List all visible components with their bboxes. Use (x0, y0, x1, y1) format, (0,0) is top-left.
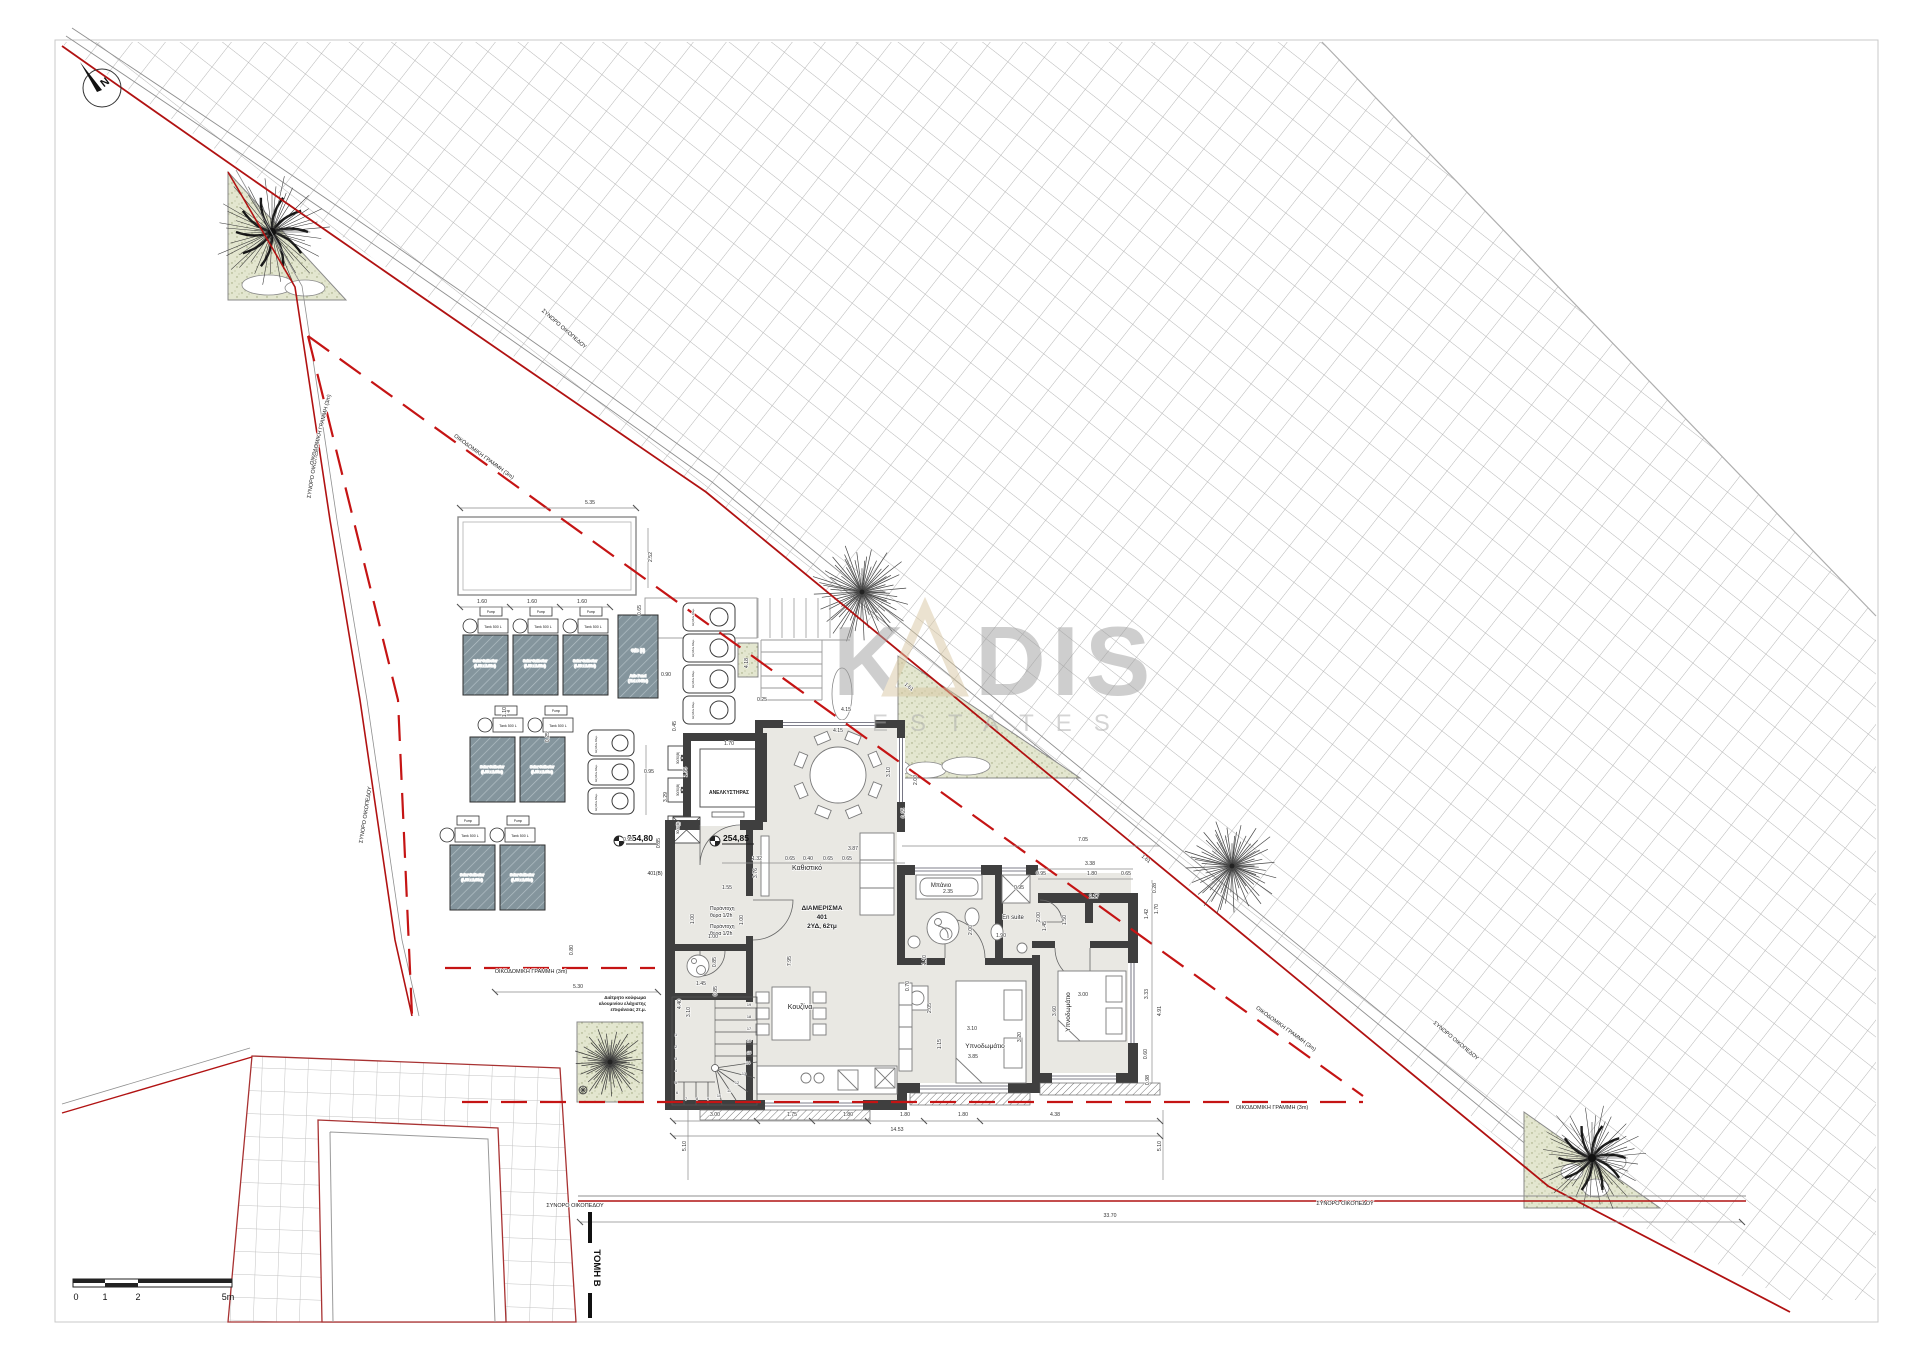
apartment-title: 401 (817, 914, 828, 921)
equipment-label: Tank 500 L (549, 724, 567, 728)
door-tag: 401(Β) (647, 871, 662, 877)
room-label: Κουζίνα (788, 1003, 813, 1011)
dimension-label: 3.29 (663, 792, 669, 802)
dimension-label: 0.95 (1036, 871, 1046, 877)
equipment-label: (1.00 x 2.00m) (574, 664, 596, 668)
dimension-label: 1.00 (739, 915, 745, 925)
equipment-label: (1.00 x 2.00m) (474, 664, 496, 668)
dimension-label: 1.70 (1154, 904, 1160, 914)
room-label: Υπνοδωμάτιο (965, 1042, 1005, 1050)
elevator-label: ΑΝΕΛΚΥΣΤΗΡΑΣ (709, 790, 749, 796)
shaft-label: 30/30(Β) (676, 784, 680, 796)
dimension-label: 0.65 (842, 856, 852, 862)
dimension-label: 4.15 (833, 728, 843, 734)
dimension-label: 5.35 (585, 500, 595, 506)
dimension-label: 1.00 (708, 934, 718, 940)
dimension-label: 1.75 (787, 1112, 797, 1118)
boundary-label: ΣΥΝΟΡΟ ΟΙΚΟΠΕΔΟΥ (546, 1203, 604, 1209)
dimension-label: 0.95 (644, 769, 654, 775)
ac-unit-label: Εξ.Μον.Κλιμ. (594, 764, 598, 782)
stair-number: 3 (675, 1057, 677, 1061)
section-label: ΤΟΜΗ Β (591, 1249, 602, 1286)
dimension-label: 1.10 (922, 955, 928, 965)
dimension-label: 0.65 (823, 856, 833, 862)
equipment-label: (1.00 x 2.00m) (524, 664, 546, 668)
ac-unit-label: Εξ.Μον.Κλιμ. (691, 639, 695, 657)
dimension-label: 1.80 (958, 1112, 968, 1118)
dimension-label: 5.30 (573, 984, 583, 990)
room-label: Καθιστικό (792, 864, 822, 872)
dimension-label: 1.15 (937, 1039, 943, 1049)
shaft-label: 30/30(Β) (676, 822, 680, 834)
stair-number: 13 (742, 1072, 746, 1076)
stair-number: 4 (675, 1069, 677, 1073)
scale-tick: 1 (102, 1292, 107, 1302)
equipment-label: Solar Collector (510, 873, 535, 877)
stair-number: 5 (675, 1081, 677, 1085)
kitchen-table (772, 987, 810, 1040)
fire-door-label: Πυράντοχη (710, 923, 735, 930)
dimension-label: 7.05 (1078, 837, 1088, 843)
dimension-label: 1.95 (683, 767, 689, 777)
equipment-label: (1.00 x 2.00m) (461, 878, 483, 882)
stair-number: 16 (747, 1039, 751, 1043)
equipment-label: Tank 500 L (484, 625, 502, 629)
equipment-label: Solar Collector (530, 765, 555, 769)
equipment-label: Pump (487, 610, 496, 614)
equipment-label: Solar Collector (573, 659, 598, 663)
room-label: En suite (1002, 915, 1024, 921)
stair-number: 18 (747, 1015, 751, 1019)
scale-tick: 2 (135, 1292, 140, 1302)
note: Διάτρητο κούφωμα (604, 995, 646, 1000)
dimension-label: 0.65 (637, 605, 643, 615)
stair-number: 1 (675, 1033, 677, 1037)
dimension-label: 1.45 (696, 981, 706, 987)
stair-number: 9 (707, 1097, 709, 1101)
dimension-label: 3.00 (1078, 992, 1088, 998)
fire-door-label: Πυράντοχη (710, 905, 735, 912)
equipment-label: (1.00 x 2.00m) (511, 878, 533, 882)
planter-symbol (579, 1086, 587, 1094)
stair-number: 19 (747, 1003, 751, 1007)
dimension-label: 0.40 (803, 856, 813, 862)
dimension-label: 3.38 (1085, 861, 1095, 867)
dimension-label: 1.45 (1042, 921, 1048, 931)
neighbour-building (228, 1056, 576, 1322)
fire-door-label: θύρα 1/2h (710, 912, 733, 919)
shaft-label: 30/30(Β) (676, 752, 680, 764)
dimension-label: 3.33 (1144, 989, 1150, 999)
dimension-label: 0.90 (661, 672, 671, 678)
dimension-label: 0.25 (545, 732, 551, 742)
dimension-label: 3.60 (1052, 1006, 1058, 1016)
dimension-label: 0.60 (1143, 1049, 1149, 1059)
stair-number: 14 (746, 1061, 750, 1065)
dimension-label: 0.65 (1121, 871, 1131, 877)
dimension-label: 1.10 (502, 707, 508, 717)
dimension-label: 0.95 (1014, 885, 1024, 891)
dimension-label: 1.60 (527, 599, 537, 605)
dimension-label: 4.91 (1157, 1006, 1163, 1016)
dimension-label: 1.70 (724, 741, 734, 747)
stair-number: 12 (735, 1081, 739, 1085)
dimension-label: 2.00 (968, 925, 974, 935)
apartment-title: 2ΥΔ, 62τμ (807, 923, 837, 930)
dimension-label: 1.60 (477, 599, 487, 605)
dimension-label: 0.25 (757, 697, 767, 703)
ac-unit-label: Εξ.Μον.Κλιμ. (691, 701, 695, 719)
equipment-label: Solar Collector (523, 659, 548, 663)
dimension-label: 0.45 (672, 721, 678, 731)
room-label: Μπάνιο (931, 882, 952, 889)
equipment-label: Pump (514, 819, 523, 823)
sofa (860, 833, 894, 915)
dimension-label: 5.10 (682, 1141, 688, 1151)
ac-unit-label: Εξ.Μον.Κλιμ. (691, 608, 695, 626)
dimension-label: 3.87 (848, 846, 858, 852)
boundary-label: ΣΥΝΟΡΟ ΟΙΚΟΠΕΔΟΥ (1316, 1201, 1374, 1207)
stair-number: 17 (747, 1027, 751, 1031)
stair-number: 7 (685, 1097, 687, 1101)
equipment-label: Solar Collector (480, 765, 505, 769)
watermark-estates: ESTATES (872, 710, 1132, 737)
dimension-label: 0.85 (712, 957, 718, 967)
dimension-label: 1.60 (577, 599, 587, 605)
dimension-label: 1.00 (690, 914, 696, 924)
watermark-k: K (833, 606, 904, 716)
dimension-label: 1.55 (722, 885, 732, 891)
dimension-label: 1.50 (1062, 915, 1068, 925)
equipment-label: Solar Collector (473, 659, 498, 663)
dimension-label: 4.40 (677, 999, 683, 1009)
dimension-label: 0.95 (623, 837, 633, 843)
dimension-label: 2.00 (1036, 912, 1042, 922)
stair-number: 6 (676, 1091, 678, 1095)
tv-unit (761, 836, 769, 896)
equipment-label: Pump (537, 610, 546, 614)
dimension-label: 3.85 (968, 1054, 978, 1060)
dimension-label: 4.15 (841, 707, 851, 713)
watermark: K DIS ESTATES (833, 606, 1156, 737)
dimension-label: 14.53 (891, 1127, 904, 1133)
scale-tick: 5m (222, 1292, 235, 1302)
equipment-label: Solar Collector (460, 873, 485, 877)
dimension-label: 0.98 (1145, 1075, 1151, 1085)
equipment-label: Pump (587, 610, 596, 614)
equipment-label: (714 x 347m) (628, 679, 648, 683)
equipment-label: Auto Panel (630, 674, 647, 678)
equipment-label: Tank 500 L (461, 834, 479, 838)
equipment-label: Pump (464, 819, 473, 823)
dimension-label: 1.32 (752, 856, 762, 862)
dimension-label: 3.76 (753, 868, 759, 878)
dimension-label: 4.38 (1050, 1112, 1060, 1118)
dimension-label: 0.65 (901, 808, 907, 818)
stair-number: 10 (717, 1094, 721, 1098)
equipment-label: Tank 500 L (584, 625, 602, 629)
dimension-label: 0.28 (1152, 883, 1158, 893)
dimension-label: 5.10 (1157, 1141, 1163, 1151)
drawing-sheet: K DIS ESTATES 254,80 254,85 N (0, 0, 1920, 1358)
dimension-label: 3.10 (967, 1026, 977, 1032)
dimension-label: 0.85 (656, 838, 662, 848)
dimension-label: 0.65 (785, 856, 795, 862)
equipment-label: (1.00 x 2.00m) (481, 770, 503, 774)
dimension-label: 3.20 (1017, 1032, 1023, 1042)
dimension-label: 2.00 (913, 775, 919, 785)
dimension-label: 1.80 (843, 1112, 853, 1118)
stair-number: 2 (675, 1045, 677, 1049)
dimension-label: 0.70 (905, 981, 911, 991)
apartment-title: ΔΙΑΜΕΡΙΣΜΑ (801, 905, 842, 912)
ac-unit-label: Εξ.Μον.Κλιμ. (594, 735, 598, 753)
equipment-label: Tank 500 L (511, 834, 529, 838)
dimension-label: 33.70 (1104, 1213, 1117, 1219)
dimension-label: 1.80 (1087, 871, 1097, 877)
stair-number: 8 (696, 1097, 698, 1101)
setback-label: ΟΙΚΟΔΟΜΙΚΗ ΓΡΑΜΜΗ (3m) (1236, 1105, 1309, 1111)
dimension-label: 2.17 (1089, 894, 1099, 900)
dimension-label: 2.35 (943, 889, 953, 895)
dimension-label: 7.95 (787, 956, 793, 966)
equipment-label: Tank 500 L (534, 625, 552, 629)
dimension-label: 0.85 (713, 986, 719, 996)
dimension-label: 3.10 (886, 767, 892, 777)
dining-table (810, 747, 866, 803)
ac-unit-label: Εξ.Μον.Κλιμ. (691, 670, 695, 688)
site-plan-canvas: K DIS ESTATES 254,80 254,85 N (0, 0, 1920, 1358)
dimension-label: 1.42 (1144, 909, 1150, 919)
elevation-value: 254,85 (723, 833, 749, 843)
equipment-label: (1.00 x 2.00m) (531, 770, 553, 774)
dimension-label: 3.10 (686, 1007, 692, 1017)
stair-number: 15 (747, 1051, 751, 1055)
scale-tick: 0 (73, 1292, 78, 1302)
equipment-label: Φ/Β (3) (631, 648, 646, 653)
room-label: Υπνοδωμάτιο (1064, 992, 1072, 1032)
setback-label: ΟΙΚΟΔΟΜΙΚΗ ΓΡΑΜΜΗ (3m) (495, 969, 568, 975)
dimension-label: 4.18 (744, 658, 750, 668)
equipment-label: Pump (552, 709, 561, 713)
equipment-label: Tank 500 L (499, 724, 517, 728)
ac-unit-label: Εξ.Μον.Κλιμ. (594, 793, 598, 811)
dimension-label: 3.00 (710, 1112, 720, 1118)
pv-panel (618, 615, 658, 698)
basin (908, 936, 920, 948)
watermark-dis: DIS (975, 606, 1156, 716)
dimension-label: 1.80 (900, 1112, 910, 1118)
toilet (965, 908, 979, 926)
dimension-label: 2.05 (927, 1003, 933, 1013)
stair-number: 11 (727, 1089, 731, 1093)
dimension-label: 0.80 (569, 945, 575, 955)
dimension-label: 1.90 (996, 933, 1006, 939)
dimension-label: 2.52 (648, 552, 654, 562)
